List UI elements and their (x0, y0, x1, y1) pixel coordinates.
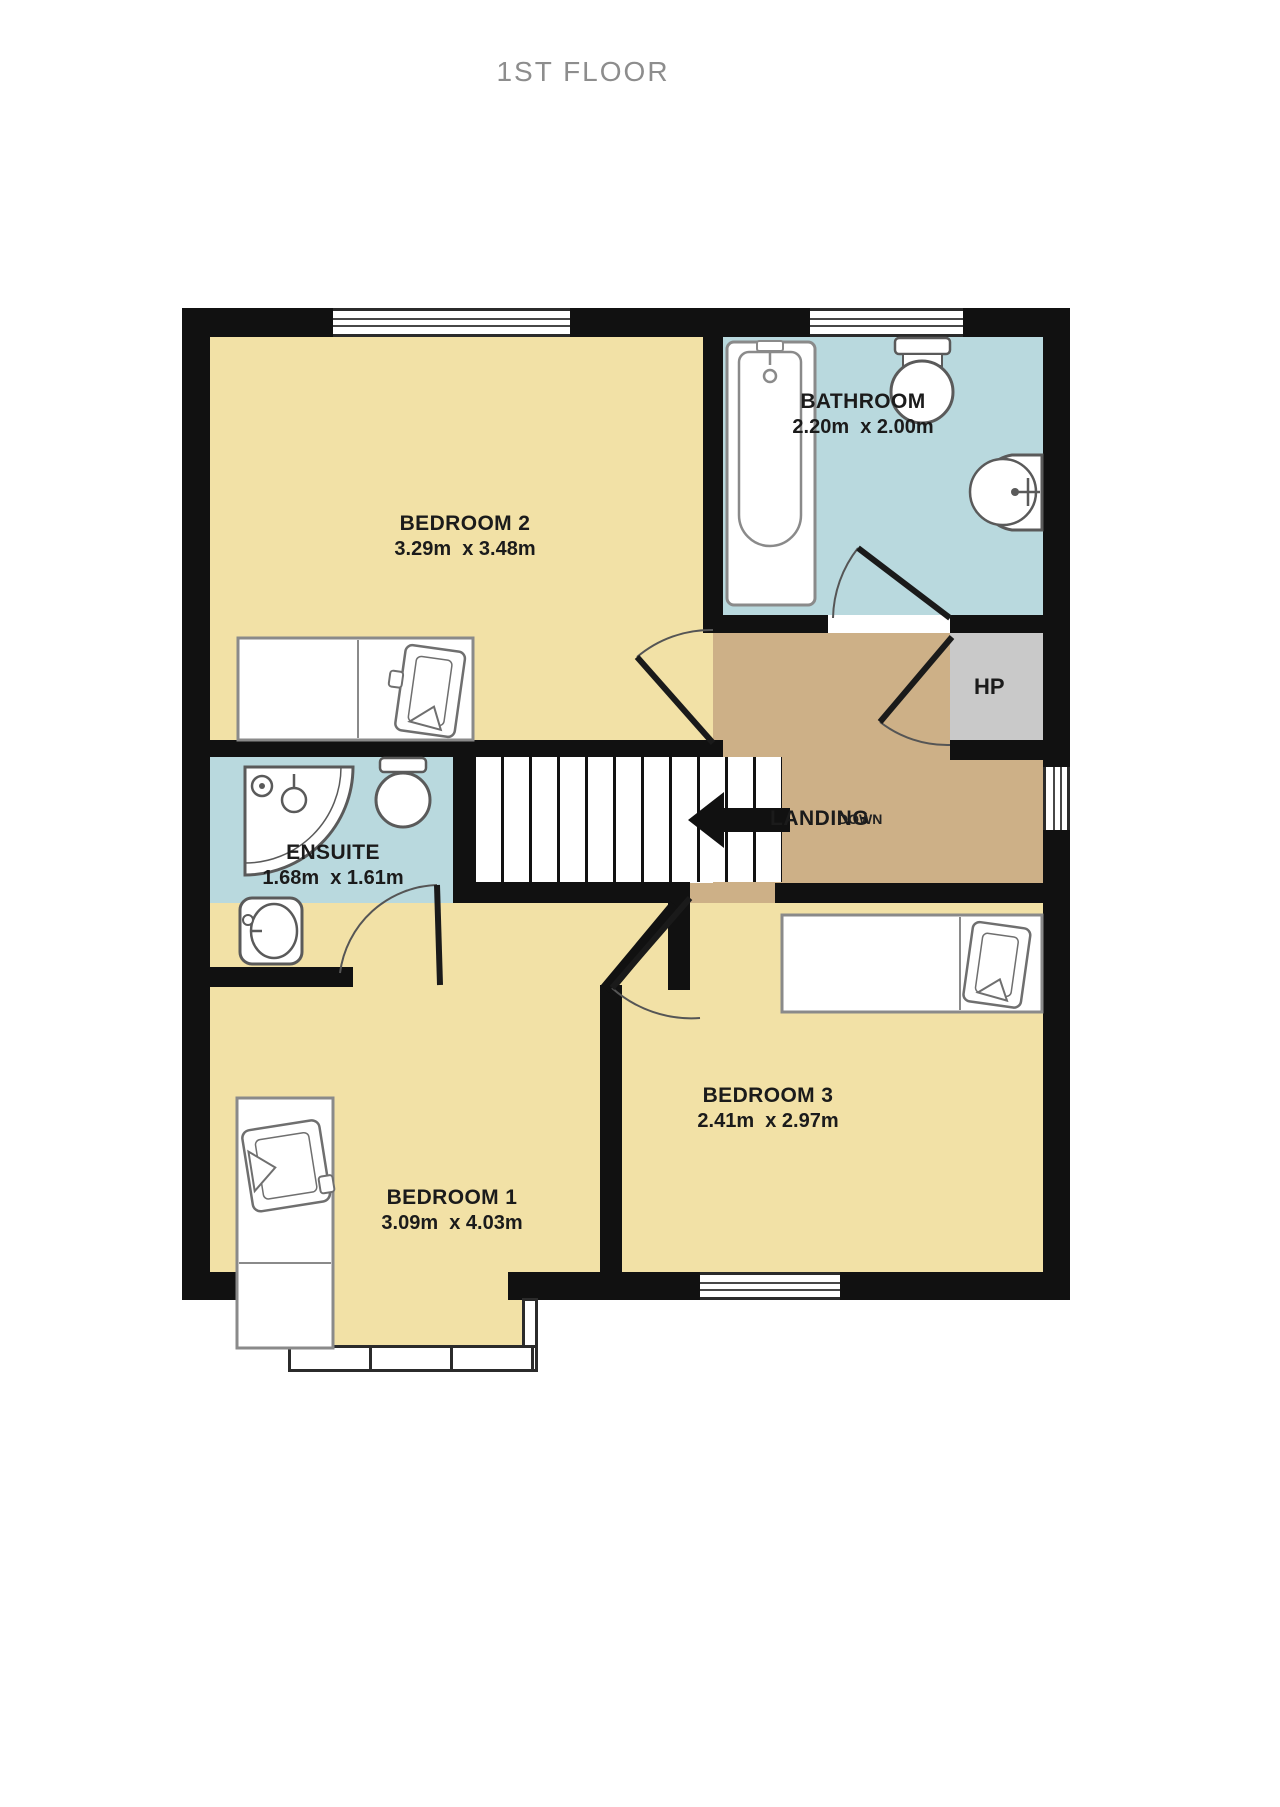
bedroom3-bed-icon (782, 915, 1042, 1012)
bedroom3-name: BEDROOM 3 (618, 1083, 918, 1109)
bedroom2-door (637, 630, 713, 743)
bedroom2-dims: 3.29m x 3.48m (315, 537, 615, 562)
wall-diagonal (606, 906, 676, 990)
bedroom1-door (340, 885, 440, 985)
bedroom1-label: BEDROOM 1 3.09m x 4.03m (302, 1185, 602, 1236)
bathroom-basin-icon (970, 455, 1042, 530)
bathroom-dims: 2.20m x 2.00m (713, 415, 1013, 440)
bedroom2-bed-icon (238, 638, 473, 740)
floorplan-page: 1ST FLOOR (0, 0, 1280, 1807)
bedroom2-name: BEDROOM 2 (315, 511, 615, 537)
bathroom-name: BATHROOM (713, 389, 1013, 415)
fixtures-overlay (0, 0, 1280, 1807)
bedroom1-dims: 3.09m x 4.03m (302, 1211, 602, 1236)
bathtub-icon (727, 341, 815, 605)
ensuite-basin-icon (240, 898, 302, 964)
ensuite-label: ENSUITE 1.68m x 1.61m (183, 840, 483, 891)
ensuite-dims: 1.68m x 1.61m (183, 866, 483, 891)
stairs-down-label: DOWN (838, 811, 882, 827)
bathroom-label: BATHROOM 2.20m x 2.00m (713, 389, 1013, 440)
bathroom-door (833, 548, 950, 618)
ensuite-toilet-icon (376, 758, 430, 827)
bedroom3-label: BEDROOM 3 2.41m x 2.97m (618, 1083, 918, 1134)
hot-press-door (880, 637, 952, 745)
ensuite-name: ENSUITE (183, 840, 483, 866)
bedroom2-label: BEDROOM 2 3.29m x 3.48m (315, 511, 615, 562)
bedroom1-name: BEDROOM 1 (302, 1185, 602, 1211)
bedroom3-dims: 2.41m x 2.97m (618, 1109, 918, 1134)
hot-press-label: HP (974, 674, 1005, 700)
